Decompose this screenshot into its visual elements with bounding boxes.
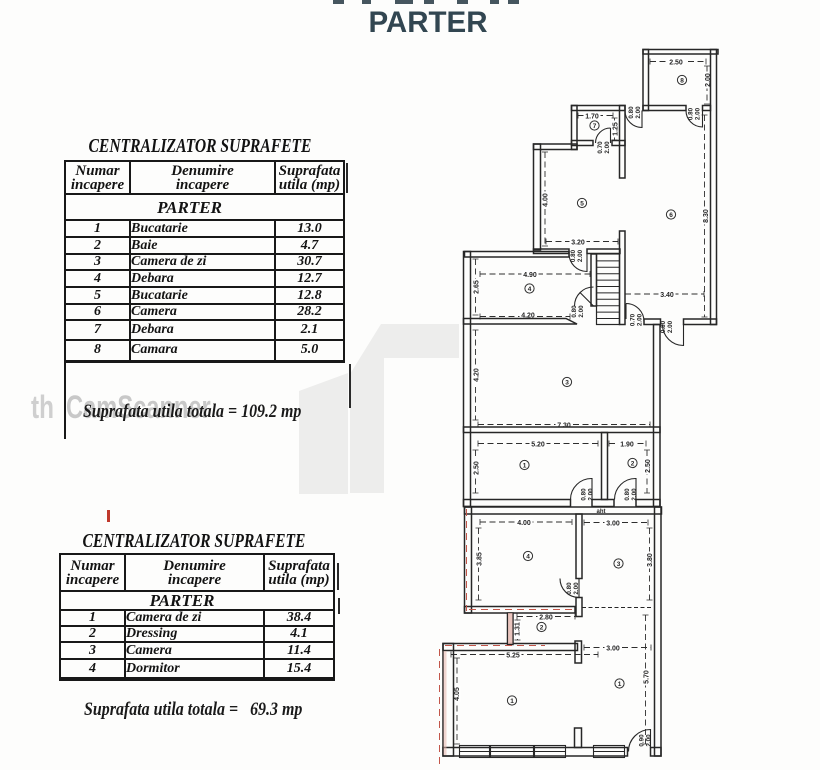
svg-text:2.00: 2.00 — [578, 305, 585, 318]
svg-text:4.90: 4.90 — [523, 272, 537, 279]
svg-text:2.00: 2.00 — [588, 488, 595, 501]
svg-text:0.80: 0.80 — [688, 107, 695, 120]
svg-text:3.40: 3.40 — [660, 292, 674, 299]
svg-text:2.00: 2.00 — [573, 582, 580, 595]
svg-text:2.00: 2.00 — [604, 141, 611, 154]
svg-text:8: 8 — [680, 77, 684, 84]
svg-text:2.80: 2.80 — [539, 615, 553, 622]
svg-text:1.70: 1.70 — [585, 114, 599, 121]
svg-text:1: 1 — [618, 681, 622, 688]
svg-text:0.80: 0.80 — [570, 249, 577, 262]
svg-text:2.50: 2.50 — [474, 461, 481, 475]
svg-text:0.70: 0.70 — [597, 141, 604, 154]
svg-text:2: 2 — [540, 624, 544, 631]
svg-text:1: 1 — [523, 462, 527, 469]
svg-text:0.80: 0.80 — [566, 582, 573, 595]
svg-text:2.50: 2.50 — [645, 459, 652, 473]
svg-text:2.00: 2.00 — [635, 106, 642, 119]
svg-text:4.05: 4.05 — [454, 687, 461, 701]
svg-text:2: 2 — [631, 460, 635, 467]
svg-text:3: 3 — [565, 379, 569, 386]
svg-text:3.80: 3.80 — [647, 553, 654, 567]
svg-text:4.00: 4.00 — [517, 520, 531, 527]
svg-text:7.30: 7.30 — [557, 423, 571, 430]
svg-text:aht: aht — [597, 509, 606, 515]
svg-text:0.80: 0.80 — [624, 488, 631, 501]
svg-text:2.00: 2.00 — [637, 313, 644, 326]
svg-text:0.90: 0.90 — [639, 734, 646, 747]
svg-text:4.00: 4.00 — [543, 193, 550, 207]
svg-text:2.65: 2.65 — [474, 280, 481, 294]
svg-text:0.70: 0.70 — [630, 313, 637, 326]
svg-text:2.00: 2.00 — [667, 320, 674, 333]
svg-text:4.20: 4.20 — [474, 368, 481, 382]
svg-text:5.25: 5.25 — [506, 653, 520, 660]
svg-text:0.80: 0.80 — [628, 106, 635, 119]
svg-text:4: 4 — [528, 286, 532, 293]
svg-text:0.80: 0.80 — [660, 320, 667, 333]
svg-text:2.50: 2.50 — [669, 60, 683, 67]
svg-text:8.30: 8.30 — [703, 209, 710, 223]
svg-text:6: 6 — [669, 212, 673, 219]
svg-text:3.00: 3.00 — [606, 646, 620, 653]
svg-text:5.70: 5.70 — [644, 670, 651, 684]
svg-text:2.00: 2.00 — [646, 734, 653, 747]
svg-text:5.20: 5.20 — [531, 442, 545, 449]
svg-text:1.31: 1.31 — [515, 622, 522, 636]
svg-text:2.00: 2.00 — [631, 488, 638, 501]
svg-text:2.00: 2.00 — [695, 107, 702, 120]
svg-text:3: 3 — [617, 561, 621, 568]
svg-text:3.00: 3.00 — [606, 521, 620, 528]
svg-text:7: 7 — [593, 123, 597, 130]
svg-text:1.90: 1.90 — [620, 442, 634, 449]
svg-text:3.20: 3.20 — [571, 240, 585, 247]
svg-text:1.25: 1.25 — [613, 122, 620, 136]
svg-text:2.00: 2.00 — [577, 249, 584, 262]
svg-text:5: 5 — [580, 200, 584, 207]
svg-text:4: 4 — [526, 553, 530, 560]
svg-text:3.85: 3.85 — [477, 552, 484, 566]
svg-text:0.80: 0.80 — [581, 488, 588, 501]
svg-text:0.80: 0.80 — [571, 305, 578, 318]
svg-text:1: 1 — [510, 698, 514, 705]
